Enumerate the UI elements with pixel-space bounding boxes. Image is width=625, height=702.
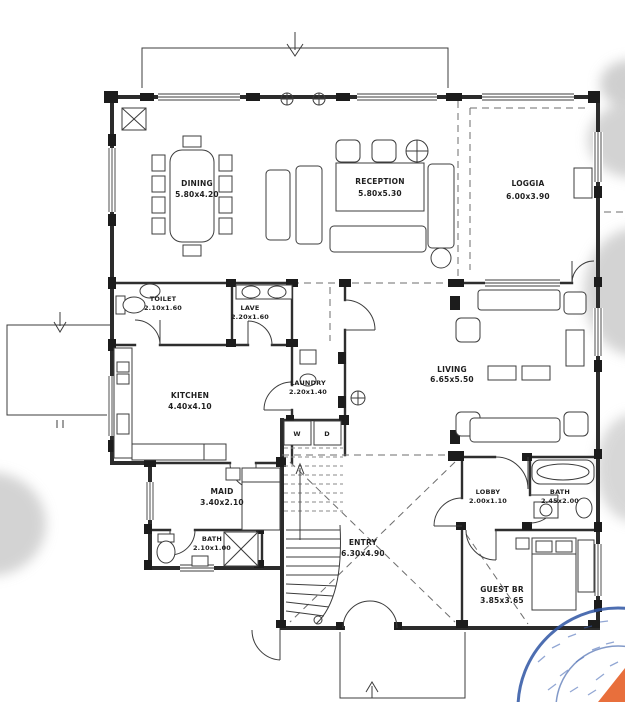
window-loggia-right [593, 132, 603, 182]
room-label-lave: LAVE [240, 304, 259, 312]
loggia-furniture [574, 168, 592, 198]
room-dims-reception: 5.80x5.30 [358, 189, 402, 198]
room-label-laundry: LAUNDRY [290, 379, 326, 387]
window-reception-top [357, 92, 437, 102]
room-dims-lave: 2.20x1.60 [231, 313, 269, 321]
dryer-label: D [324, 430, 330, 438]
room-label-living: LIVING [437, 365, 467, 374]
room-label-loggia: LOGGIA [512, 179, 545, 188]
room-dims-guest: 3.85x3.65 [480, 596, 524, 605]
lave-fixtures [236, 285, 292, 299]
window-living-right [593, 308, 603, 356]
room-label-guest: GUEST BR [480, 585, 524, 594]
window-maid-left [145, 482, 155, 520]
window-dining-top [158, 92, 240, 102]
room-label-reception: RECEPTION [355, 177, 404, 186]
washer-label: W [293, 430, 300, 438]
room-dims-toilet: 2.10x1.60 [144, 304, 182, 312]
room-dims-bath-maid: 2.10x1.00 [193, 544, 231, 552]
light-fixture-icon [313, 93, 325, 105]
window-loggia-bottom [485, 278, 560, 288]
floor-drain-icon [351, 391, 365, 405]
room-dims-kitchen: 4.40x4.10 [168, 402, 212, 411]
room-label-dining: DINING [181, 179, 213, 188]
room-label-entry: ENTRY [349, 538, 378, 547]
room-label-lobby: LOBBY [476, 488, 501, 496]
window-loggia-top [482, 92, 574, 102]
room-label-maid: MAID [210, 487, 233, 496]
scanned-floor-plan-page: W D [0, 0, 625, 702]
room-dims-loggia: 6.00x3.90 [506, 192, 550, 201]
window-dining-left [107, 148, 117, 212]
room-dims-maid: 3.40x2.10 [200, 498, 244, 507]
room-label-toilet: TOILET [150, 295, 177, 303]
room-dims-entry: 6.30x4.90 [341, 549, 385, 558]
light-fixture-icon [281, 93, 293, 105]
room-dims-laundry: 2.20x1.40 [289, 388, 327, 396]
room-label-bath-maid: BATH [202, 535, 222, 543]
room-label-bath-guest: BATH [550, 488, 570, 496]
room-dims-bath-guest: 2.45x2.00 [541, 497, 579, 505]
room-label-kitchen: KITCHEN [171, 391, 209, 400]
room-dims-dining: 5.80x4.20 [175, 190, 219, 199]
room-dims-lobby: 2.00x1.10 [469, 497, 507, 505]
floor-plan-canvas: W D [0, 0, 625, 702]
room-dims-living: 6.65x5.50 [430, 375, 474, 384]
